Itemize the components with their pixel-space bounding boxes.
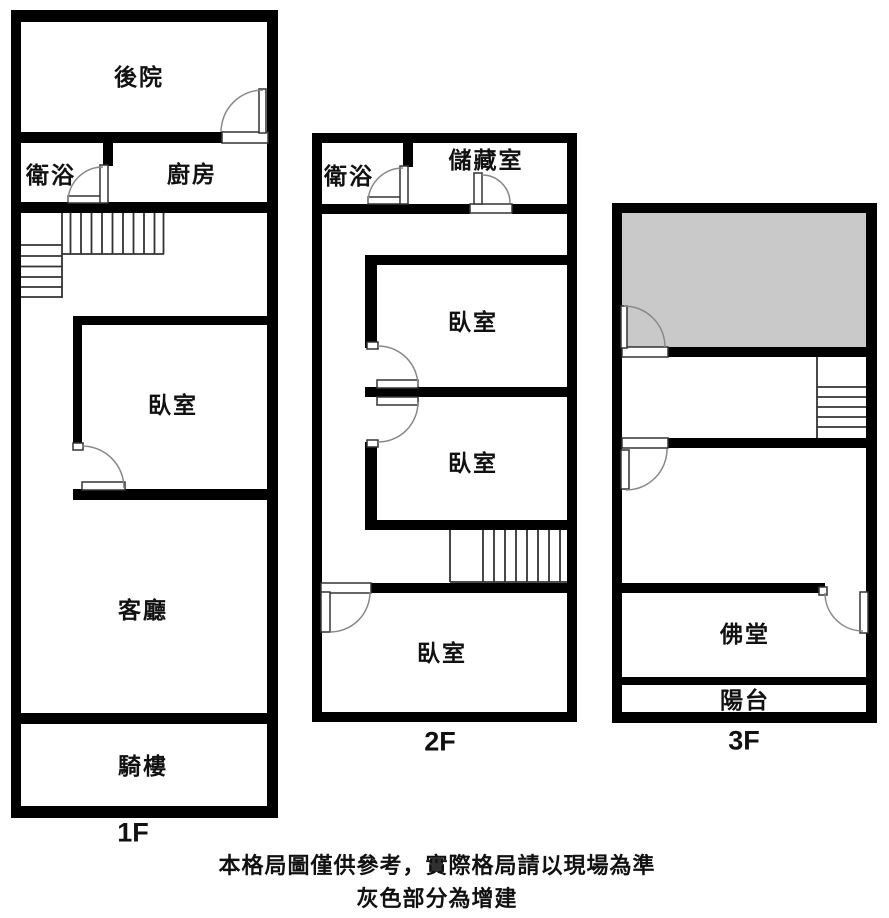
room-label-bedroom1-2f: 臥室 xyxy=(448,303,498,337)
room-label-living-room: 客廳 xyxy=(118,591,168,625)
room-label-buddhist-hall: 佛堂 xyxy=(720,615,770,649)
room-label-bedroom2-2f: 臥室 xyxy=(448,444,498,478)
door-backyard xyxy=(221,89,268,143)
floor-label-3f: 3F xyxy=(728,726,760,757)
stairs-2f xyxy=(450,530,567,582)
floor-label-1f: 1F xyxy=(117,818,149,849)
floor-plan-canvas: 後院 衛浴 廚房 臥室 客廳 騎樓 1F 衛浴 儲藏室 臥室 臥室 臥室 2F … xyxy=(0,0,889,918)
disclaimer-line-1: 本格局圖僅供參考，實際格局請以現場為準 xyxy=(218,848,655,880)
room-label-bedroom-1f: 臥室 xyxy=(148,386,198,420)
door-bathroom-2f xyxy=(368,166,408,204)
room-label-bathroom-1f: 衛浴 xyxy=(26,156,76,190)
room-label-bathroom-2f: 衛浴 xyxy=(324,157,374,191)
stairs-3f xyxy=(817,357,866,438)
door-bedroom-1f xyxy=(73,443,125,490)
room-label-bedroom3-2f: 臥室 xyxy=(417,634,467,668)
door-bedroom3-2f xyxy=(321,583,371,632)
stairs-1f xyxy=(21,213,164,298)
room-label-balcony: 陽台 xyxy=(720,681,770,715)
door-storage-2f xyxy=(470,173,512,213)
disclaimer-line-2: 灰色部分為增建 xyxy=(356,881,517,913)
room-label-backyard: 後院 xyxy=(114,58,164,92)
door-buddhist-hall-3f xyxy=(819,587,868,633)
door-stair-room-3f xyxy=(621,438,668,490)
floor-label-2f: 2F xyxy=(424,727,456,758)
room-label-kitchen: 廚房 xyxy=(167,155,217,189)
room-label-storage: 儲藏室 xyxy=(449,141,524,175)
door-bedroom2-2f xyxy=(367,397,418,447)
door-addition-3f xyxy=(621,306,668,357)
room-label-arcade: 騎樓 xyxy=(118,747,168,781)
door-bedroom1-2f xyxy=(367,342,418,388)
